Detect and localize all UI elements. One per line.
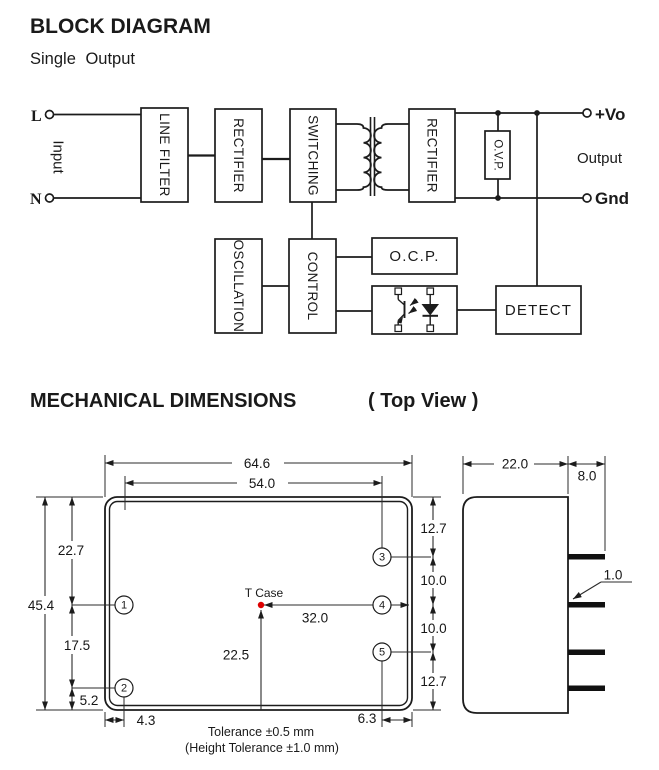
vo-label: +Vo	[595, 105, 625, 124]
pin4-number: 4	[379, 600, 385, 612]
height-tolerance-note: (Height Tolerance ±1.0 mm)	[185, 741, 339, 755]
junction-dot	[534, 110, 540, 116]
dim-inner-width: 54.0	[249, 476, 275, 491]
block-diagram-section: BLOCK DIAGRAM Single Output L N Input	[30, 15, 629, 334]
mechanical-title: MECHANICAL DIMENSIONS	[30, 390, 296, 412]
line-terminal-icon	[46, 111, 54, 119]
case-side-view: 22.0 8.0 1.0	[463, 456, 632, 713]
optocoupler-box	[372, 286, 457, 334]
pin-bar	[568, 602, 605, 608]
dim-pin-length: 8.0	[578, 469, 597, 484]
dim-pin3-to-pin4: 10.0	[420, 573, 446, 588]
ovp-label: O.V.P.	[492, 139, 504, 170]
pin2-number: 2	[121, 683, 127, 695]
dim-tcase-to-bottom: 22.5	[223, 648, 249, 663]
tolerance-note: Tolerance ±0.5 mm	[208, 725, 314, 739]
rectifier1-label: RECTIFIER	[231, 118, 246, 193]
dim-case-depth: 22.0	[502, 457, 528, 472]
detect-label: DETECT	[505, 302, 572, 319]
junction-dot	[495, 195, 501, 201]
switching-label: SWITCHING	[306, 115, 321, 196]
output-label: Output	[577, 150, 623, 167]
dim-left-pin-offset: 4.3	[137, 713, 156, 728]
block-diagram-title: BLOCK DIAGRAM	[30, 15, 211, 38]
pin-bar	[568, 554, 605, 560]
mechanical-section: MECHANICAL DIMENSIONS ( Top View )	[23, 390, 632, 755]
dim-pin1-to-pin2: 17.5	[64, 638, 90, 653]
dim-pin4-to-pin5: 10.0	[420, 621, 446, 636]
pin-bar	[568, 650, 605, 656]
input-label: Input	[50, 140, 67, 174]
dim-pin-thickness: 1.0	[604, 568, 623, 583]
line-filter-label: LINE FILTER	[157, 113, 172, 197]
block-boxes: LINE FILTER RECTIFIER SWITCHING RECTIFIE…	[141, 108, 581, 334]
neutral-terminal-icon	[46, 194, 54, 202]
dim-total-height: 45.4	[28, 598, 55, 613]
dim-tcase-to-edge: 32.0	[302, 611, 328, 626]
neutral-terminal-label: N	[30, 191, 42, 208]
pin3-number: 3	[379, 552, 385, 564]
pin-bar	[568, 686, 605, 692]
vo-terminal-icon	[583, 109, 591, 117]
datasheet-page: BLOCK DIAGRAM Single Output L N Input	[0, 0, 659, 770]
gnd-label: Gnd	[595, 189, 629, 208]
pin1-number: 1	[121, 600, 127, 612]
dim-top-to-pin1: 22.7	[58, 543, 84, 558]
side-view-pins	[568, 554, 605, 691]
t-case-label: T Case	[245, 586, 284, 600]
input-terminals: L N Input	[30, 108, 141, 208]
ocp-label: O.C.P.	[389, 248, 439, 265]
output-terminals: +Vo Output Gnd	[577, 105, 629, 208]
dim-outer-width: 64.6	[244, 456, 270, 471]
dim-pin5-to-bottom: 12.7	[420, 674, 446, 689]
transformer-icon	[336, 117, 409, 196]
control-label: CONTROL	[305, 252, 320, 321]
junction-dot	[495, 110, 501, 116]
dim-top-to-pin3: 12.7	[420, 521, 446, 536]
t-case-dot-icon	[258, 602, 264, 608]
gnd-terminal-icon	[583, 194, 591, 202]
oscillation-label: OSCILLATION	[231, 240, 246, 333]
line-terminal-label: L	[31, 108, 42, 125]
dim-right-pin-offset: 6.3	[358, 711, 377, 726]
block-diagram-subtitle: Single Output	[30, 50, 135, 68]
diagram-canvas: BLOCK DIAGRAM Single Output L N Input	[0, 0, 659, 770]
rectifier2-label: RECTIFIER	[425, 118, 440, 193]
pin5-number: 5	[379, 647, 385, 659]
top-view-label: ( Top View )	[368, 390, 478, 412]
tolerance-notes: Tolerance ±0.5 mm (Height Tolerance ±1.0…	[185, 725, 339, 755]
dim-pin2-to-bottom: 5.2	[80, 693, 99, 708]
